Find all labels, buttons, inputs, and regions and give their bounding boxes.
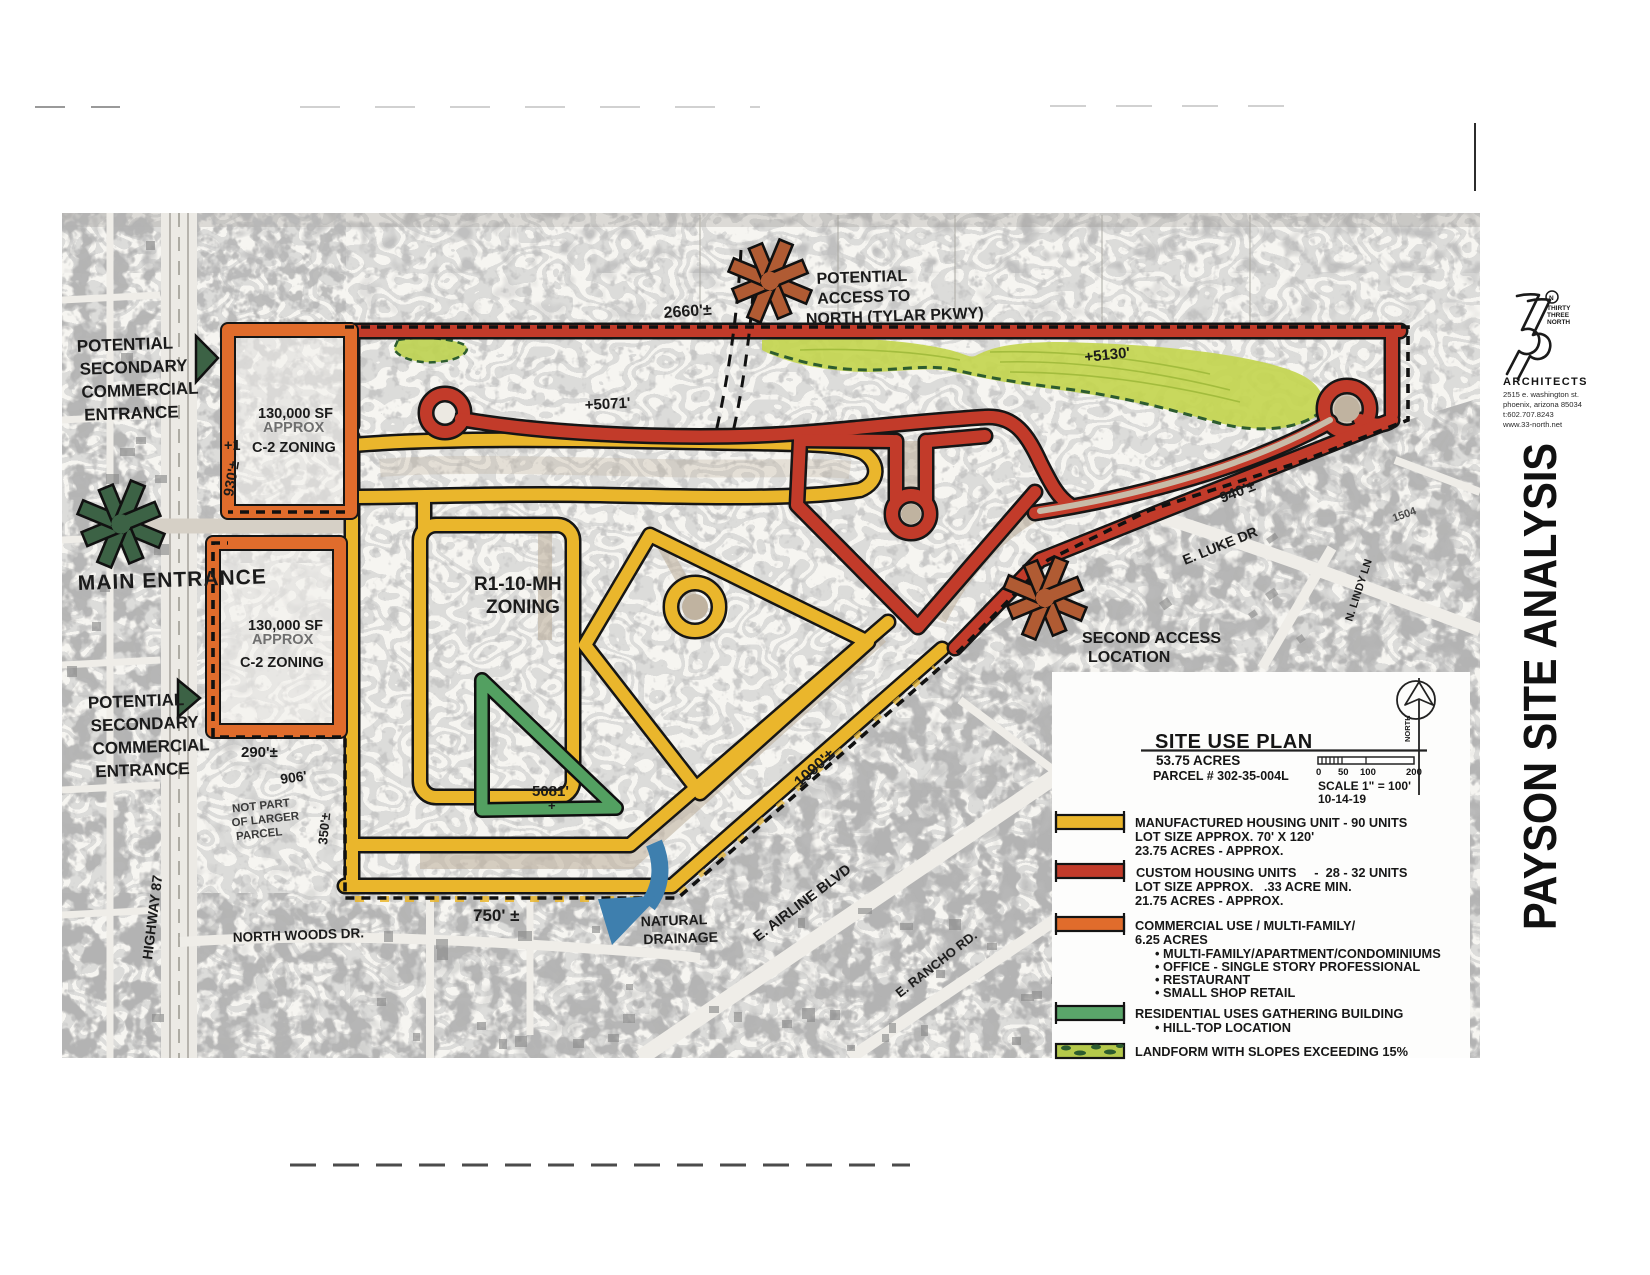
svg-text:LOT SIZE APPROX. .33 ACRE MI: LOT SIZE APPROX. .33 ACRE MIN. — [1135, 879, 1352, 894]
svg-text:N: N — [1549, 295, 1554, 302]
svg-text:SECONDARY: SECONDARY — [90, 713, 199, 736]
svg-text:R1-10-MH: R1-10-MH — [474, 574, 562, 595]
svg-text:www.33-north.net: www.33-north.net — [1502, 420, 1563, 429]
svg-text:NORTH: NORTH — [1547, 319, 1570, 326]
svg-text:PAYSON SITE ANALYSIS: PAYSON SITE ANALYSIS — [1514, 443, 1566, 930]
svg-text:COMMERCIAL USE / MULTI-FAMILY/: COMMERCIAL USE / MULTI-FAMILY/ — [1135, 918, 1356, 933]
svg-text:ENTRANCE: ENTRANCE — [95, 759, 190, 781]
svg-text:ENTRANCE: ENTRANCE — [84, 402, 179, 424]
svg-text:2515 e. washington st.: 2515 e. washington st. — [1503, 390, 1579, 399]
svg-text:phoenix, arizona 85034: phoenix, arizona 85034 — [1503, 400, 1582, 409]
svg-text:CUSTOM HOUSING UNITS - 28: CUSTOM HOUSING UNITS - 28 - 32 UNITS — [1136, 865, 1408, 880]
svg-text:0: 0 — [1316, 767, 1321, 778]
svg-text:ZONING: ZONING — [486, 597, 560, 618]
svg-text:2660'±: 2660'± — [663, 302, 712, 322]
svg-text:SITE USE PLAN: SITE USE PLAN — [1155, 731, 1313, 753]
svg-text:THREE: THREE — [1547, 312, 1570, 319]
svg-text:• HILL-TOP LOCATION: • HILL-TOP LOCATION — [1155, 1020, 1291, 1035]
svg-text:t:602.707.8243: t:602.707.8243 — [1503, 410, 1554, 419]
svg-text:PARCEL # 302-35-004L: PARCEL # 302-35-004L — [1153, 769, 1289, 783]
svg-text:LOCATION: LOCATION — [1088, 649, 1170, 666]
svg-text:NORTH: NORTH — [1403, 715, 1412, 742]
svg-text:C-2 ZONING: C-2 ZONING — [252, 440, 336, 456]
svg-text:RESIDENTIAL USES GATHERING BUI: RESIDENTIAL USES GATHERING BUILDING — [1135, 1006, 1403, 1021]
svg-text:200: 200 — [1406, 767, 1422, 778]
svg-text:53.75 ACRES: 53.75 ACRES — [1156, 753, 1240, 768]
svg-text:ARCHITECTS: ARCHITECTS — [1503, 376, 1588, 388]
svg-text:• SMALL SHOP RETAIL: • SMALL SHOP RETAIL — [1155, 985, 1295, 1000]
svg-text:DRAINAGE: DRAINAGE — [643, 929, 718, 948]
svg-text:SECOND ACCESS: SECOND ACCESS — [1082, 630, 1221, 647]
svg-text:+1: +1 — [224, 438, 241, 454]
svg-text:THIRTY: THIRTY — [1547, 305, 1571, 312]
svg-text:21.75 ACRES - APPROX.: 21.75 ACRES - APPROX. — [1135, 893, 1283, 908]
svg-text:290'±: 290'± — [241, 744, 278, 761]
svg-text:SCALE 1" = 100': SCALE 1" = 100' — [1318, 779, 1411, 793]
svg-text:10-14-19: 10-14-19 — [1318, 792, 1366, 806]
svg-text:LANDFORM WITH SLOPES EXCEEDING: LANDFORM WITH SLOPES EXCEEDING 15% — [1135, 1044, 1409, 1059]
svg-text:100: 100 — [1360, 767, 1376, 778]
svg-text:POTENTIAL: POTENTIAL — [816, 268, 907, 288]
svg-text:POTENTIAL: POTENTIAL — [77, 333, 174, 355]
svg-text:ACCESS TO: ACCESS TO — [817, 288, 911, 308]
svg-text:6.25 ACRES: 6.25 ACRES — [1135, 932, 1208, 947]
svg-text:+: + — [548, 798, 556, 813]
svg-text:MANUFACTURED HOUSING UNIT - 90: MANUFACTURED HOUSING UNIT - 90 UNITS — [1135, 815, 1408, 830]
svg-text:NATURAL: NATURAL — [640, 911, 708, 929]
svg-text:APPROX: APPROX — [263, 420, 325, 436]
svg-text:750' ±: 750' ± — [473, 906, 519, 925]
svg-text:LOT SIZE APPROX. 70' X 120': LOT SIZE APPROX. 70' X 120' — [1135, 829, 1314, 844]
svg-text:+5071': +5071' — [584, 395, 631, 414]
svg-text:C-2 ZONING: C-2 ZONING — [240, 655, 324, 671]
svg-text:23.75 ACRES - APPROX.: 23.75 ACRES - APPROX. — [1135, 843, 1283, 858]
svg-text:POTENTIAL: POTENTIAL — [88, 690, 185, 712]
svg-text:50: 50 — [1338, 767, 1349, 778]
svg-text:APPROX: APPROX — [252, 632, 314, 648]
svg-text:SECONDARY: SECONDARY — [79, 356, 188, 379]
